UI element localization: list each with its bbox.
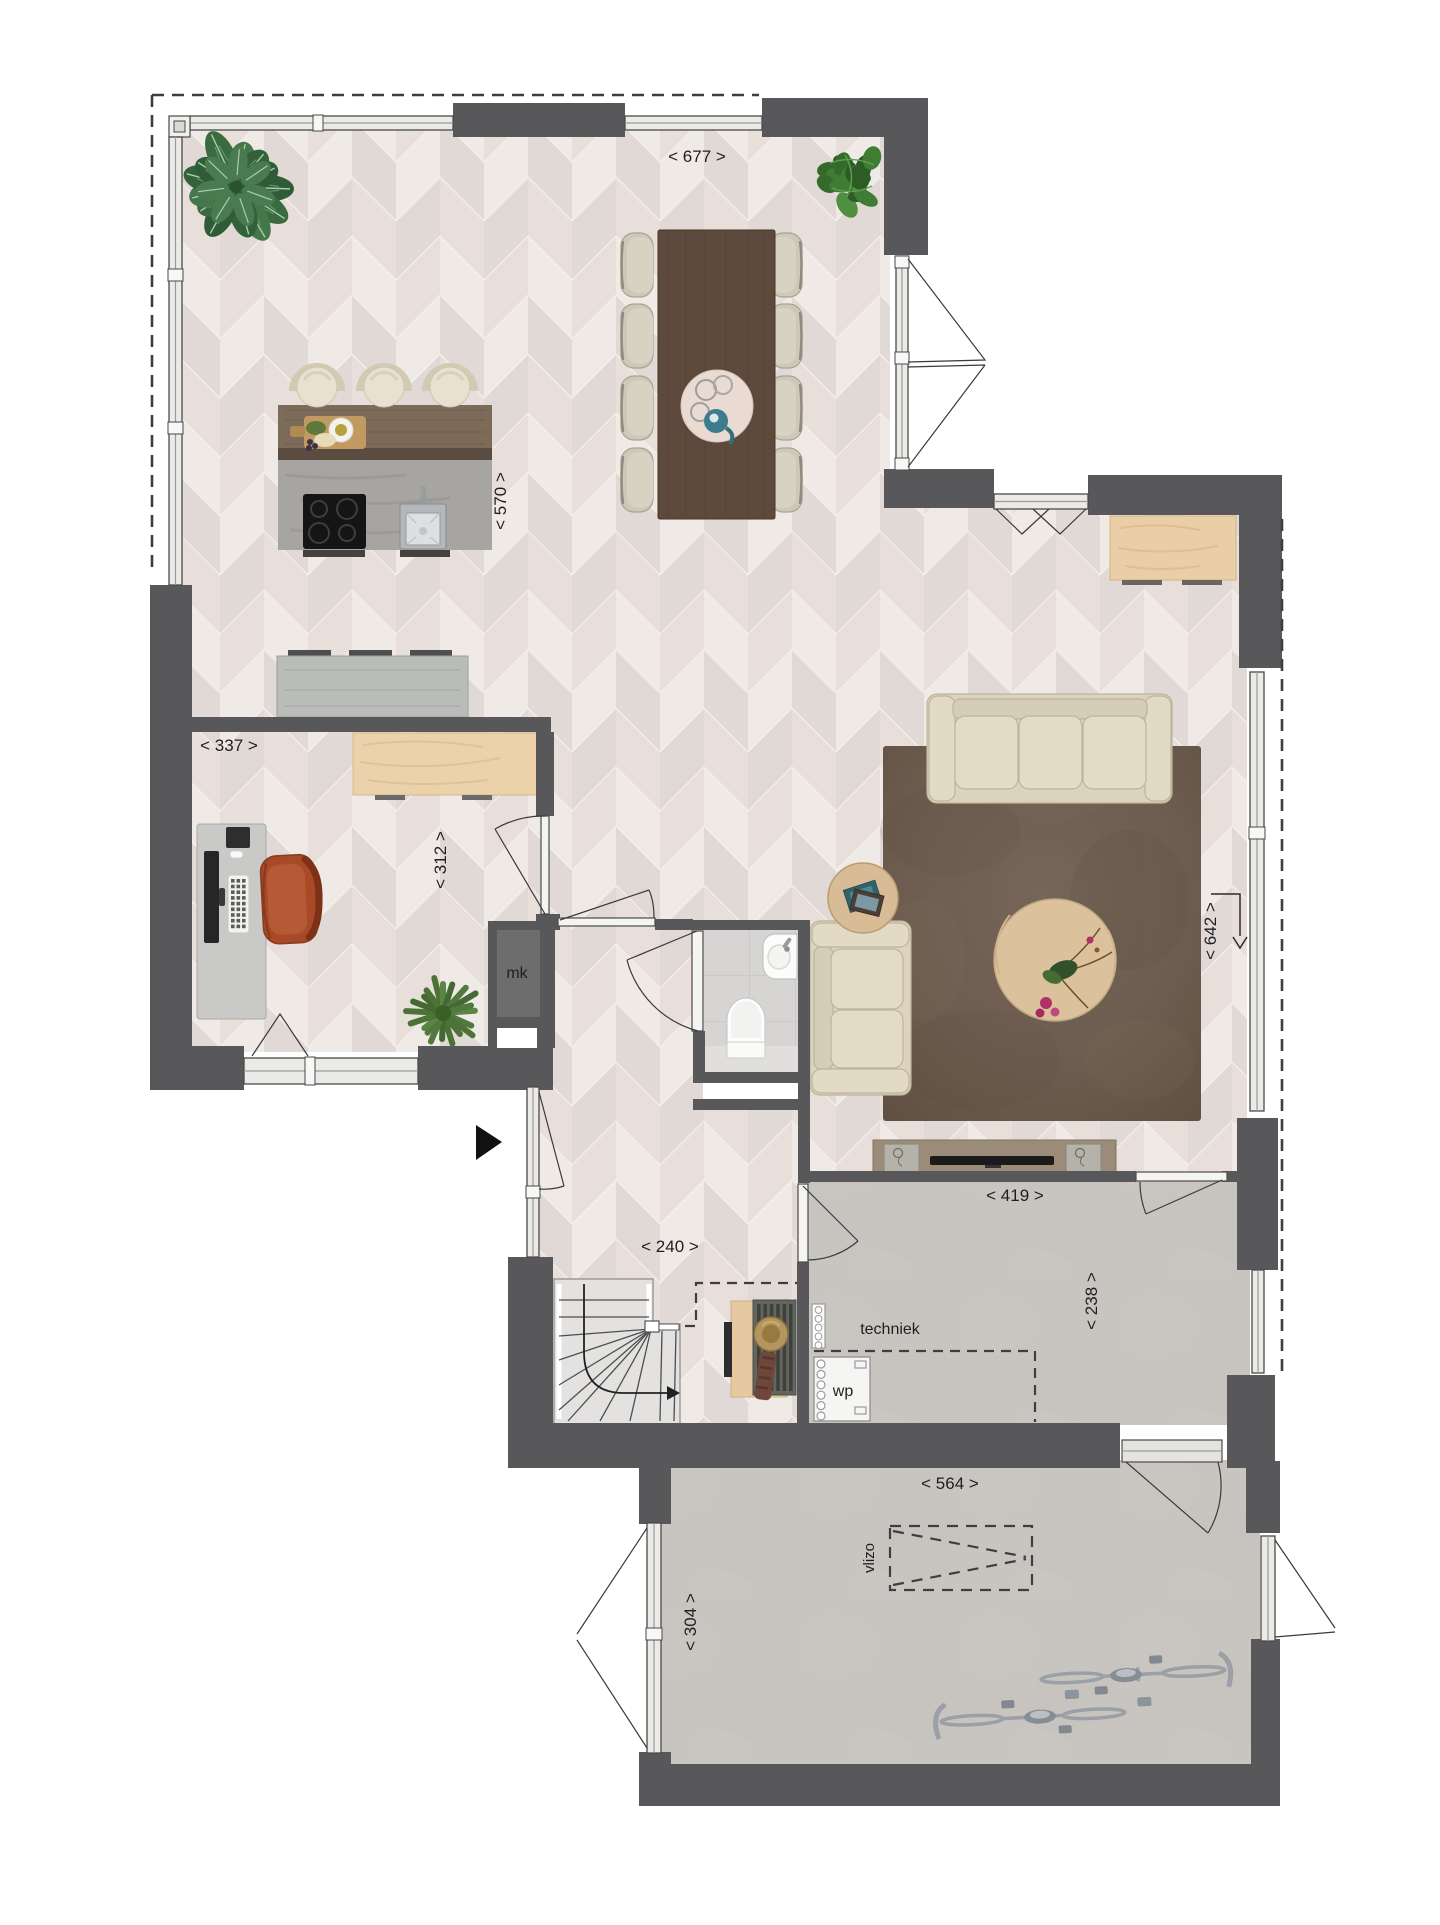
svg-text:< 304 >: < 304 > — [681, 1593, 700, 1651]
svg-text:mk: mk — [506, 965, 528, 982]
svg-text:vlizo: vlizo — [861, 1543, 878, 1573]
svg-text:< 312 >: < 312 > — [431, 831, 450, 889]
svg-text:< 570 >: < 570 > — [491, 472, 510, 530]
svg-text:< 240 >: < 240 > — [641, 1237, 699, 1256]
svg-text:< 419 >: < 419 > — [986, 1186, 1044, 1205]
svg-text:< 677 >: < 677 > — [668, 147, 726, 166]
svg-text:< 564 >: < 564 > — [921, 1474, 979, 1493]
svg-text:wp: wp — [832, 1383, 854, 1400]
svg-text:techniek: techniek — [860, 1321, 921, 1338]
svg-text:< 642 >: < 642 > — [1201, 902, 1220, 960]
svg-text:< 238 >: < 238 > — [1082, 1272, 1101, 1330]
svg-text:< 337 >: < 337 > — [200, 736, 258, 755]
